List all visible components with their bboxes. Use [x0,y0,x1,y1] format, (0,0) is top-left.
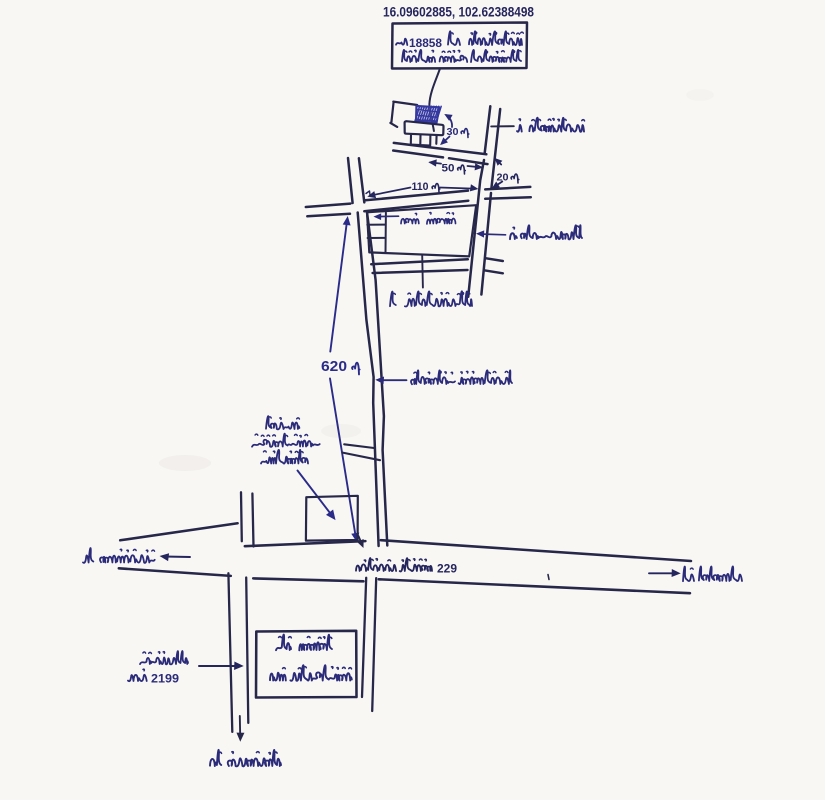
svg-text:30: 30 [447,126,459,138]
svg-text:18858: 18858 [409,38,443,50]
svg-text:229: 229 [437,562,457,576]
svg-text:50: 50 [442,163,455,175]
svg-text:2199: 2199 [151,672,179,686]
svg-text:20: 20 [497,172,509,184]
svg-text:16.09602885, 102.62388498: 16.09602885, 102.62388498 [383,5,534,20]
svg-text:110: 110 [412,181,429,193]
svg-text:620: 620 [321,359,347,375]
